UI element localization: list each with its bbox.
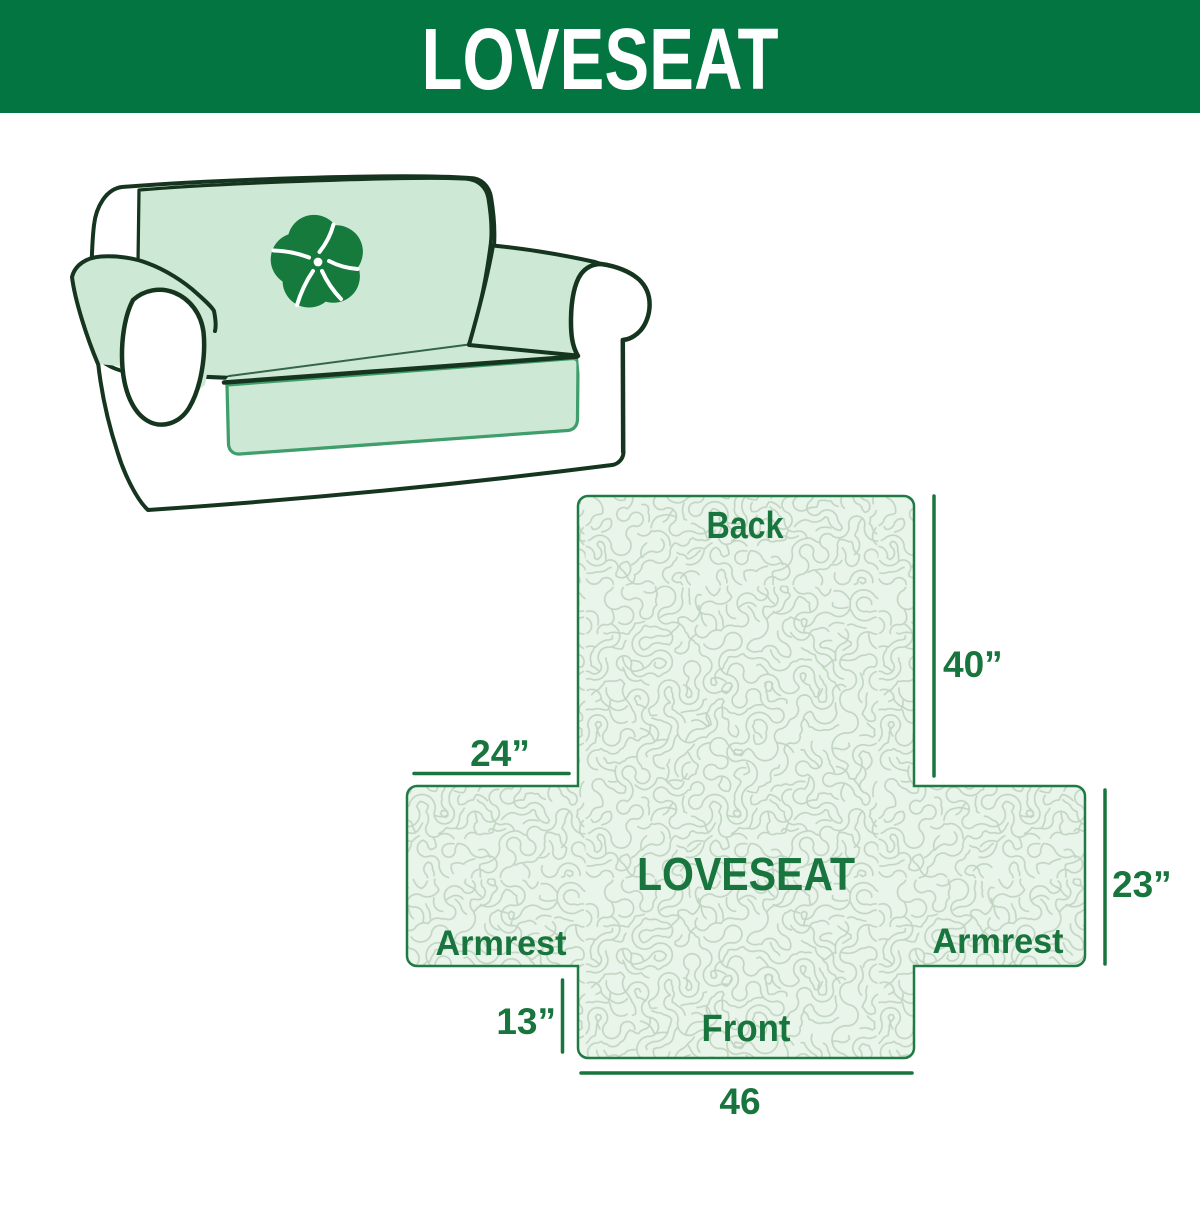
svg-text:LOVESEAT: LOVESEAT <box>422 11 779 108</box>
svg-text:Front: Front <box>702 1008 791 1050</box>
svg-text:Armrest: Armrest <box>436 924 567 963</box>
svg-text:Armrest: Armrest <box>933 922 1064 961</box>
svg-text:24”: 24” <box>470 733 530 774</box>
svg-text:40”: 40” <box>943 644 1003 685</box>
svg-text:Back: Back <box>707 505 785 547</box>
svg-text:23”: 23” <box>1112 864 1172 905</box>
svg-text:46: 46 <box>719 1081 760 1122</box>
svg-text:13”: 13” <box>496 1001 556 1042</box>
svg-text:LOVESEAT: LOVESEAT <box>637 848 855 900</box>
